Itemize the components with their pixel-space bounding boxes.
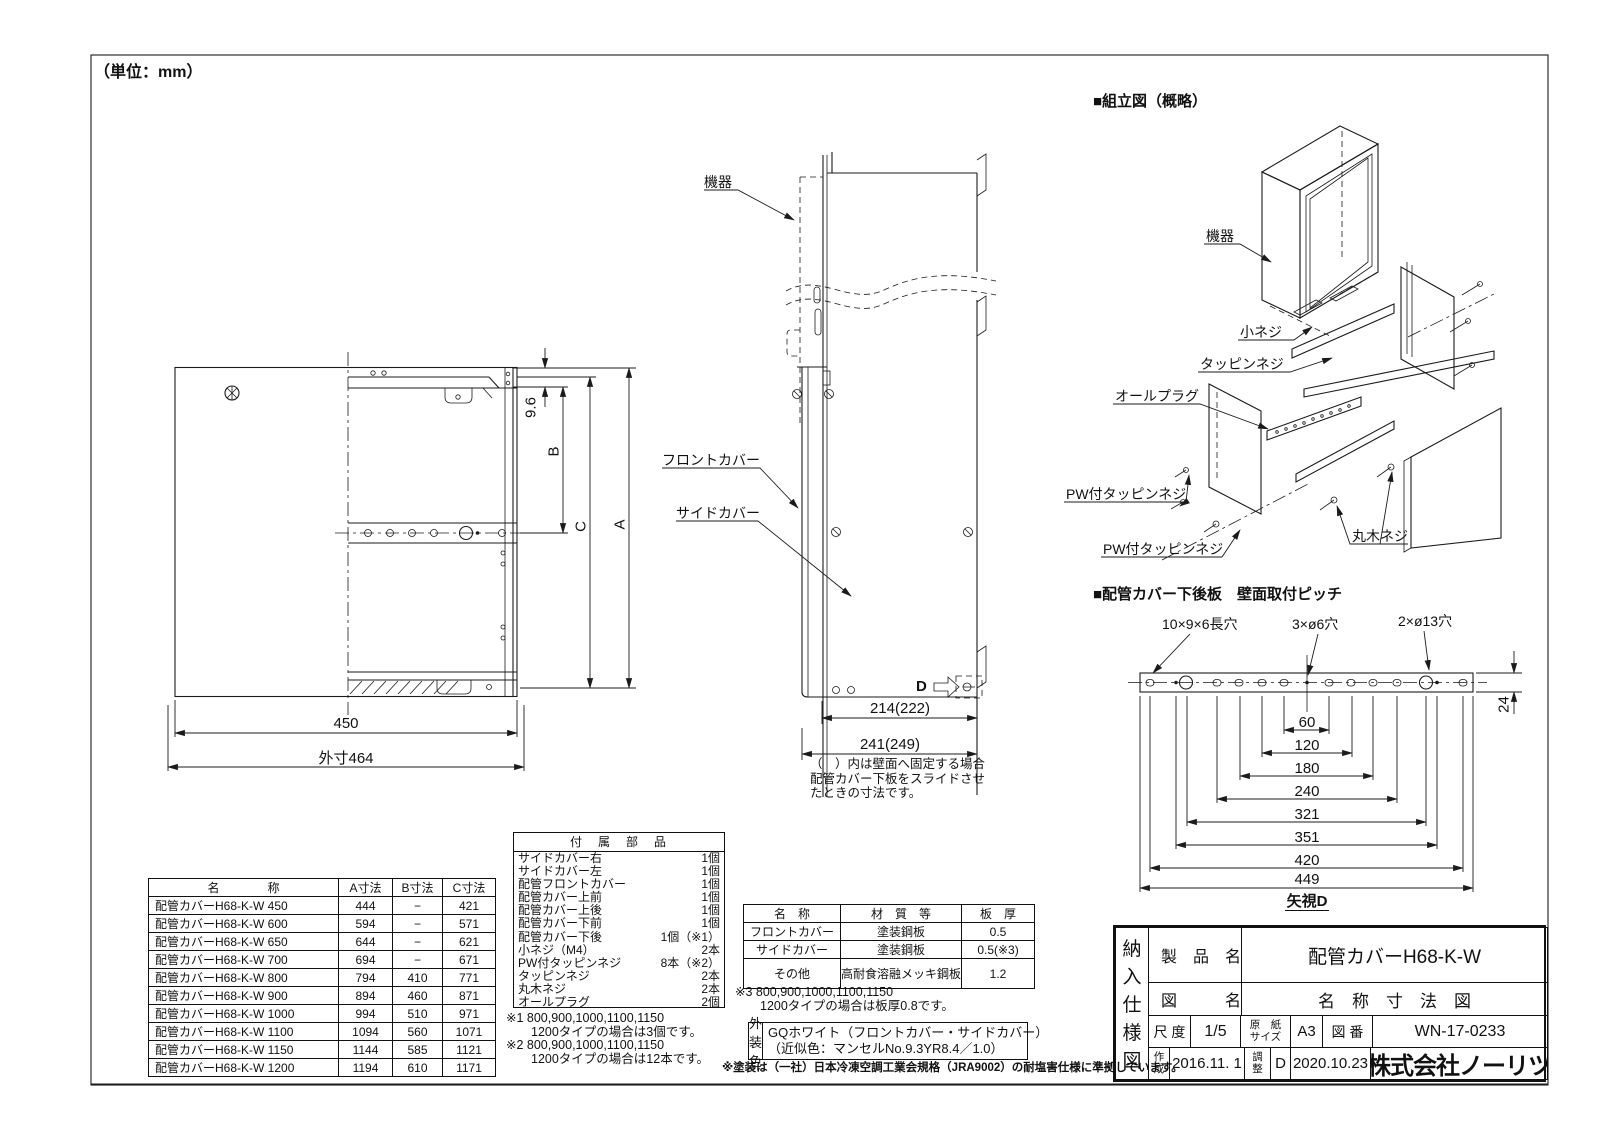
created-label: 作成 <box>1148 1047 1170 1080</box>
title-block: 納入仕様図 製 品 名 配管カバーH68-K-W 図 名 名 称 寸 法 図 尺… <box>1113 925 1546 1082</box>
side-view-d-mark: D <box>916 678 927 695</box>
front-dim-c: C <box>573 505 590 549</box>
unit-note: （単位：mm） <box>94 58 202 82</box>
pitch-dim-420: 420 <box>1272 852 1342 869</box>
table-row: サイドカバー塗装鋼板0.5(※3) <box>744 941 1035 959</box>
table-row: 配管カバーH68-K-W 900894460871 <box>149 987 496 1005</box>
list-item: 配管カバー下後1個（※1） <box>514 931 724 944</box>
side-view-note: （ ）内は壁面へ固定する場合配管カバー下板をスライドさせたときの寸法です。 <box>810 757 985 801</box>
company-logo: 株式会社ノーリツ <box>1370 1047 1548 1080</box>
mat-col-name: 名 称 <box>744 905 841 923</box>
dim-col-a: A寸法 <box>339 879 393 897</box>
list-item: PW付タッピンネジ8本（※2） <box>514 957 724 970</box>
front-view <box>168 348 636 771</box>
dim-col-c: C寸法 <box>443 879 496 897</box>
paper-size-value: A3 <box>1290 1015 1323 1048</box>
parts-notes: ※1 800,900,1000,1100,1150 1200タイプの場合は3個で… <box>506 1012 709 1066</box>
created-date: 2016.11. 1 <box>1169 1047 1245 1080</box>
list-item: 配管カバー下前1個 <box>514 917 724 930</box>
product-name-label: 製 品 名 <box>1148 927 1242 983</box>
table-row: 配管カバーH68-K-W 600594−571 <box>149 915 496 933</box>
exterior-color-box: 外装色 GQホワイト（フロントカバー・サイドカバー） （近似色：マンセルNo.9… <box>748 1022 1028 1060</box>
pitch-dim-351: 351 <box>1272 829 1342 846</box>
table-row: 配管カバーH68-K-W 120011946101171 <box>149 1059 496 1077</box>
adjusted-label: 調整 <box>1244 1047 1271 1080</box>
table-row: 配管カバーH68-K-W 115011445851121 <box>149 1041 496 1059</box>
assembly-label-pw-tapping-2: PW付タッピンネジ <box>1103 541 1223 557</box>
exterior-color-line2: （近似色：マンセルNo.9.3YR8.4／1.0） <box>768 1041 1048 1057</box>
front-dim-9-6: 9.6 <box>523 386 540 430</box>
drawing-sheet: （単位：mm） 450 外寸464 9.6 B C A 機器 フロントカバー サ… <box>0 0 1600 1131</box>
side-label-front-cover: フロントカバー <box>662 452 760 468</box>
assembly-label-small-screw: 小ネジ <box>1240 324 1282 340</box>
list-item: オールプラグ2個 <box>514 996 724 1009</box>
table-row: フロントカバー塗装鋼板0.5 <box>744 923 1035 941</box>
table-row: 配管カバーH68-K-W 450444−421 <box>149 897 496 915</box>
pitch-dim-321: 321 <box>1272 806 1342 823</box>
paper-size-label: 原 紙サイズ <box>1240 1015 1291 1048</box>
table-row: 配管カバーH68-K-W 700694−671 <box>149 951 496 969</box>
assembly-label-equipment: 機器 <box>1206 228 1234 244</box>
material-table: 名 称 材 質 等 板 厚 フロントカバー塗装鋼板0.5サイドカバー塗装鋼板0.… <box>743 904 1035 989</box>
front-dim-464: 外寸464 <box>296 750 396 767</box>
parts-table-title: 付 属 部 品 <box>514 833 724 852</box>
dimension-table: 名 称 A寸法 B寸法 C寸法 配管カバーH68-K-W 450444−421配… <box>148 878 496 1077</box>
dim-col-b: B寸法 <box>393 879 443 897</box>
table-row: その他高耐食溶融メッキ鋼板1.2 <box>744 959 1035 989</box>
front-dim-450: 450 <box>306 715 386 732</box>
dim-col-name: 名 称 <box>149 879 339 897</box>
pitch-dim-24: 24 <box>1496 683 1513 727</box>
list-item: タッピンネジ2本 <box>514 970 724 983</box>
adjusted-mark: D <box>1270 1047 1291 1080</box>
side-dim-214: 214(222) <box>850 700 950 717</box>
drawing-name-value: 名 称 寸 法 図 <box>1241 982 1548 1016</box>
front-dim-b: B <box>546 430 563 474</box>
table-row: 配管カバーH68-K-W 110010945601071 <box>149 1023 496 1041</box>
pitch-label-d13-holes: 2×ø13穴 <box>1398 613 1452 629</box>
assembly-label-round-wood-screw: 丸木ネジ <box>1352 528 1408 544</box>
table-row: 配管カバーH68-K-W 800794410771 <box>149 969 496 987</box>
front-dim-a: A <box>612 503 629 547</box>
pitch-title: ■配管カバー下後板 壁面取付ピッチ <box>1093 583 1342 604</box>
table-row: 配管カバーH68-K-W 650644−621 <box>149 933 496 951</box>
list-item: 小ネジ（M4）2本 <box>514 944 724 957</box>
product-name-value: 配管カバーH68-K-W <box>1241 927 1548 983</box>
pitch-label-d6-holes: 3×ø6穴 <box>1292 616 1338 632</box>
pitch-view-arrow-label: 矢視D <box>1277 893 1337 910</box>
mat-col-thickness: 板 厚 <box>962 905 1035 923</box>
assembly-label-all-plug: オールプラグ <box>1115 388 1199 404</box>
drawing-name-label: 図 名 <box>1148 982 1242 1016</box>
title-block-doc-type: 納入仕様図 <box>1115 927 1149 1080</box>
mat-col-material: 材 質 等 <box>841 905 962 923</box>
assembly-label-tapping: タッピンネジ <box>1200 356 1284 372</box>
pitch-label-slot-holes: 10×9×6長穴 <box>1162 616 1238 632</box>
assembly-title: ■組立図（概略） <box>1093 90 1207 111</box>
pitch-dim-120: 120 <box>1272 737 1342 754</box>
pitch-dim-180: 180 <box>1272 760 1342 777</box>
scale-value: 1/5 <box>1190 1015 1241 1048</box>
side-label-side-cover: サイドカバー <box>676 505 760 521</box>
exterior-color-label: 外装色 <box>749 1023 763 1059</box>
drawing-number-label: 図 番 <box>1322 1015 1373 1048</box>
parts-table: 付 属 部 品 サイドカバー右1個サイドカバー左1個配管フロントカバー1個配管カ… <box>513 832 725 1008</box>
side-dim-241: 241(249) <box>840 736 940 753</box>
scale-label: 尺 度 <box>1148 1015 1191 1048</box>
drawing-number-value: WN-17-0233 <box>1372 1015 1548 1048</box>
material-note: ※3 800,900,1000,1100,1150 1200タイプの場合は板厚0… <box>735 986 954 1013</box>
pitch-dim-60: 60 <box>1272 714 1342 731</box>
exterior-color-line1: GQホワイト（フロントカバー・サイドカバー） <box>768 1025 1048 1041</box>
assembly-label-pw-tapping-1: PW付タッピンネジ <box>1066 486 1186 502</box>
adjusted-date: 2020.10.23 <box>1290 1047 1371 1080</box>
pitch-dim-240: 240 <box>1272 783 1342 800</box>
pitch-dim-449: 449 <box>1272 871 1342 888</box>
side-label-equipment: 機器 <box>704 174 732 190</box>
table-row: 配管カバーH68-K-W 1000994510971 <box>149 1005 496 1023</box>
